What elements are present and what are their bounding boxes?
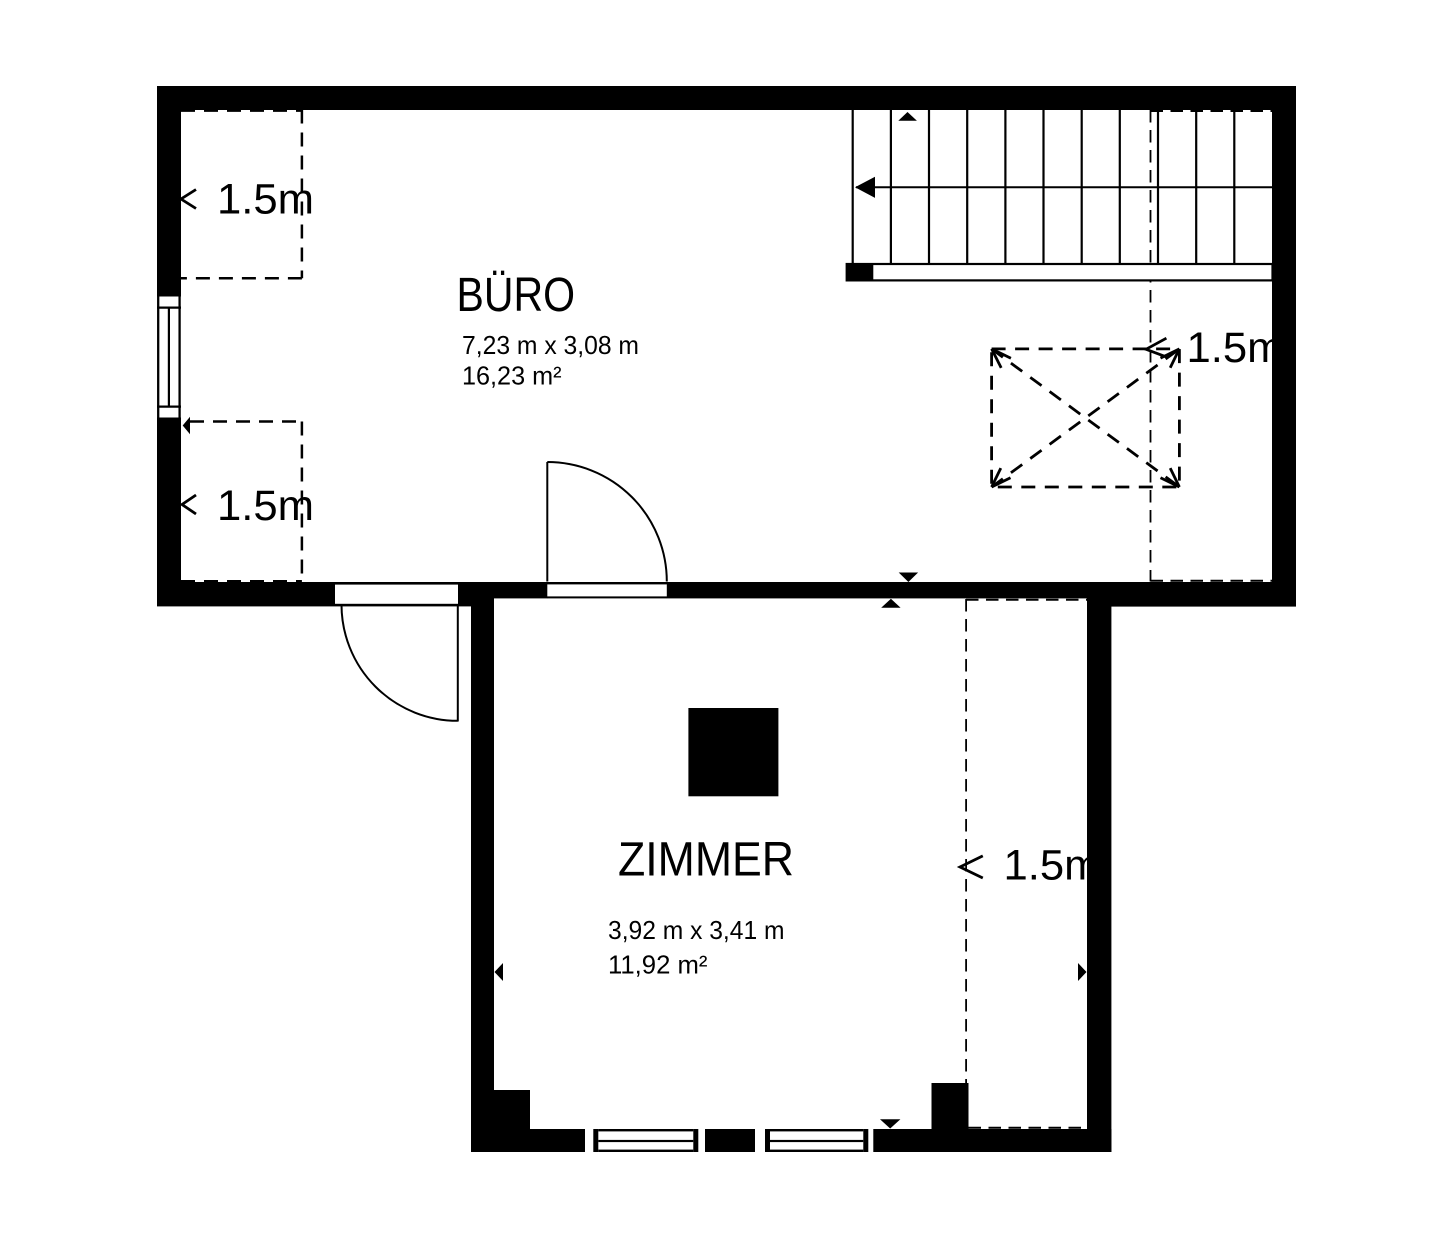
svg-text:ZIMMER: ZIMMER [618, 833, 794, 887]
svg-text:BÜRO: BÜRO [457, 268, 576, 322]
svg-text:1.5m: 1.5m [217, 176, 314, 224]
svg-text:11,92 m²: 11,92 m² [608, 950, 708, 980]
svg-text:16,23 m²: 16,23 m² [462, 361, 562, 391]
svg-text:1.5m: 1.5m [1004, 842, 1101, 890]
svg-text:1.5m: 1.5m [1187, 324, 1284, 372]
svg-text:1.5m: 1.5m [217, 482, 314, 530]
svg-text:3,92 m x 3,41 m: 3,92 m x 3,41 m [608, 915, 785, 945]
svg-text:7,23 m x 3,08 m: 7,23 m x 3,08 m [462, 330, 639, 360]
